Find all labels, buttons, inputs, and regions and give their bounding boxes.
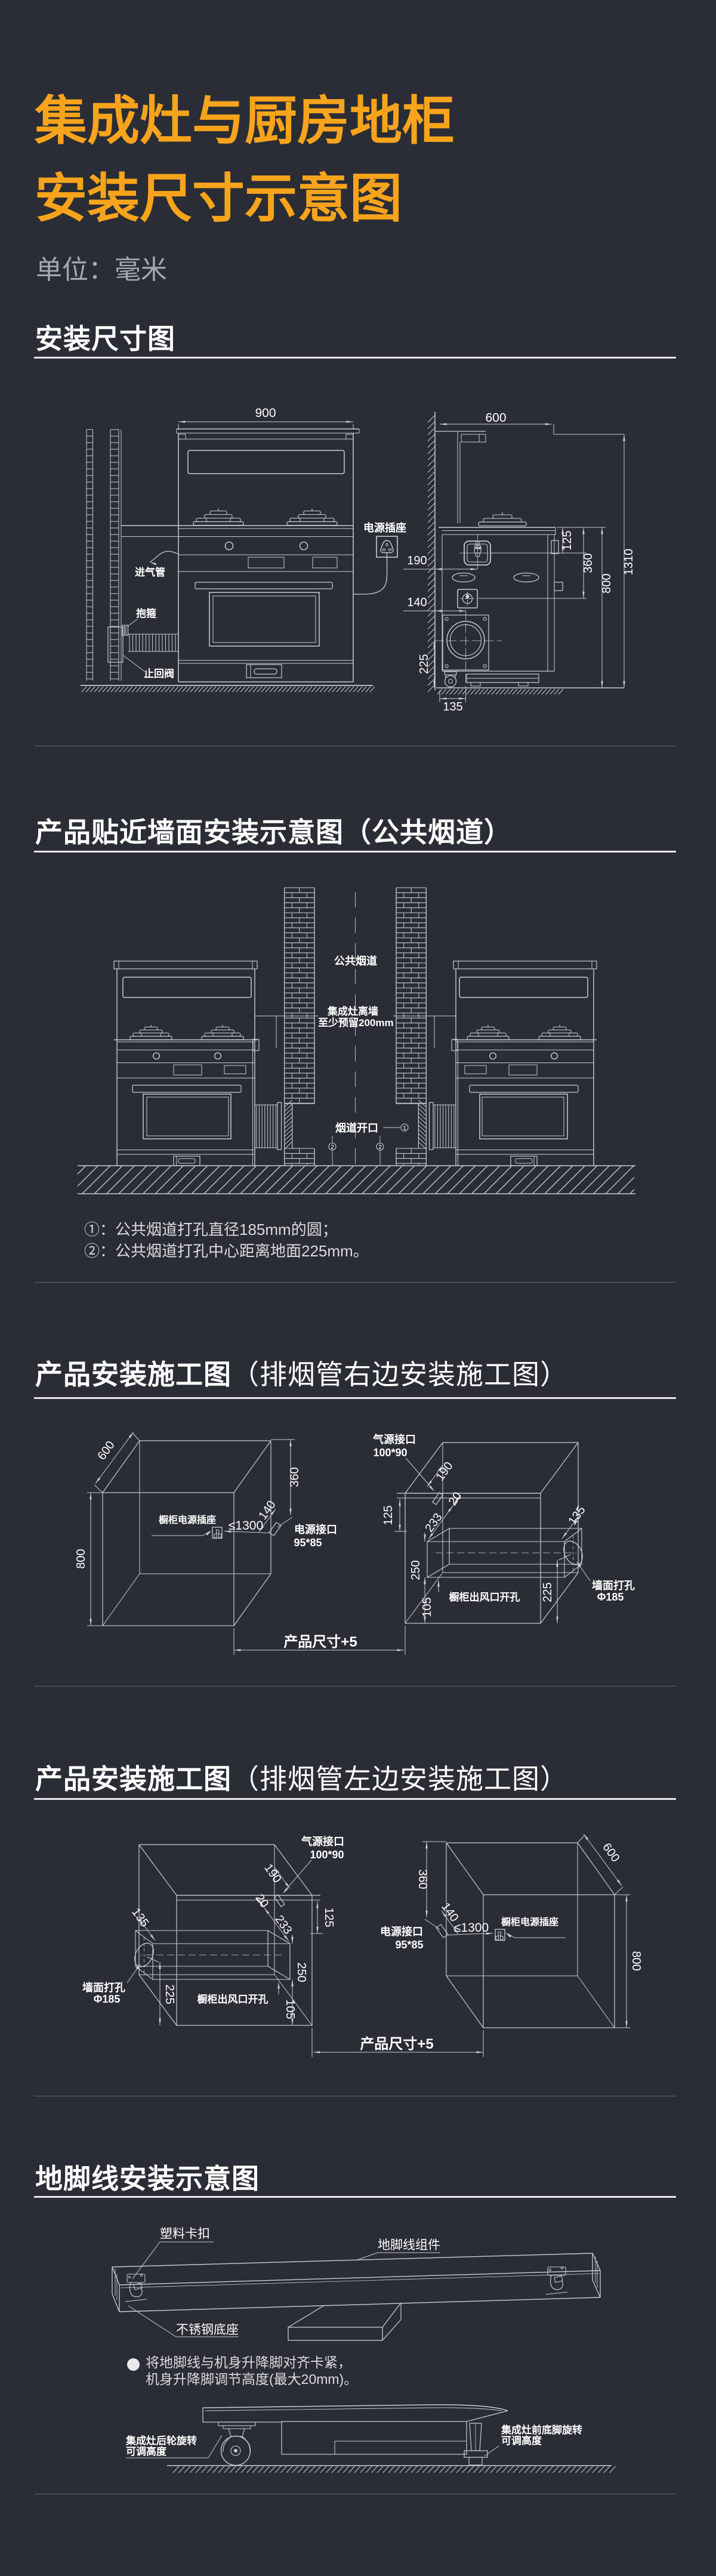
svg-text:烟道开口: 烟道开口	[335, 1122, 378, 1134]
svg-text:135: 135	[129, 1906, 151, 1930]
svg-text:2: 2	[331, 1144, 334, 1151]
svg-text:250: 250	[409, 1560, 422, 1580]
svg-text:105: 105	[421, 1597, 434, 1617]
svg-text:止回阀: 止回阀	[144, 668, 174, 679]
svg-text:800: 800	[600, 573, 613, 593]
svg-text:140: 140	[407, 596, 427, 609]
svg-text:100*90: 100*90	[373, 1447, 407, 1459]
svg-text:1310: 1310	[622, 549, 635, 576]
svg-text:产品尺寸+5: 产品尺寸+5	[283, 1633, 357, 1650]
svg-text:橱柜出风口开孔: 橱柜出风口开孔	[197, 1993, 268, 2005]
svg-text:135: 135	[566, 1504, 588, 1528]
svg-text:抱箍: 抱箍	[136, 607, 156, 619]
svg-text:橱柜电源插座: 橱柜电源插座	[501, 1916, 558, 1928]
svg-text:Φ185: Φ185	[94, 1993, 121, 2005]
svg-text:塑料卡扣: 塑料卡扣	[160, 2227, 210, 2241]
svg-text:电源接口: 电源接口	[294, 1523, 337, 1536]
svg-text:集成灶后轮旋转: 集成灶后轮旋转	[125, 2435, 197, 2447]
svg-text:225: 225	[541, 1582, 554, 1602]
svg-text:集成灶离墙: 集成灶离墙	[327, 1005, 378, 1017]
svg-text:100*90: 100*90	[310, 1849, 344, 1861]
svg-text:600: 600	[485, 411, 506, 425]
svg-text:集成灶前底脚旋转: 集成灶前底脚旋转	[501, 2424, 582, 2436]
svg-text:2: 2	[378, 1144, 382, 1151]
svg-text:电源接口: 电源接口	[380, 1925, 423, 1938]
svg-text:≤1300: ≤1300	[229, 1519, 263, 1533]
svg-text:600: 600	[95, 1439, 117, 1463]
svg-text:Φ185: Φ185	[597, 1591, 624, 1603]
svg-text:橱柜出风口开孔: 橱柜出风口开孔	[449, 1591, 520, 1603]
svg-text:125: 125	[382, 1505, 395, 1525]
svg-text:125: 125	[561, 530, 574, 550]
svg-text:95*85: 95*85	[395, 1939, 423, 1951]
svg-text:≤1300: ≤1300	[454, 1921, 489, 1935]
svg-text:360: 360	[416, 1869, 429, 1889]
svg-text:135: 135	[443, 700, 462, 714]
svg-text:105: 105	[283, 1999, 297, 2019]
svg-text:1: 1	[403, 1125, 406, 1132]
svg-text:气源接口: 气源接口	[301, 1835, 344, 1848]
svg-text:800: 800	[75, 1549, 88, 1568]
svg-text:墙面打孔: 墙面打孔	[592, 1579, 635, 1592]
svg-text:600: 600	[600, 1841, 622, 1865]
svg-text:气源接口: 气源接口	[372, 1433, 416, 1445]
svg-text:电源插座: 电源插座	[363, 521, 406, 534]
svg-text:地脚线组件: 地脚线组件	[378, 2238, 440, 2252]
svg-text:进气管: 进气管	[135, 566, 165, 578]
svg-text:125: 125	[322, 1907, 335, 1927]
svg-text:产品尺寸+5: 产品尺寸+5	[360, 2036, 433, 2052]
svg-text:360: 360	[288, 1467, 301, 1487]
svg-text:橱柜电源插座: 橱柜电源插座	[159, 1514, 216, 1525]
svg-text:233: 233	[272, 1913, 294, 1937]
svg-text:900: 900	[255, 406, 276, 420]
svg-text:可调高度: 可调高度	[126, 2445, 167, 2457]
svg-text:233: 233	[422, 1511, 445, 1535]
svg-text:225: 225	[163, 1984, 176, 2004]
svg-text:190: 190	[407, 554, 427, 567]
svg-text:可调高度: 可调高度	[501, 2435, 542, 2447]
svg-text:20: 20	[252, 1892, 271, 1910]
svg-text:190: 190	[433, 1460, 455, 1484]
svg-text:至少预留200mm: 至少预留200mm	[318, 1017, 394, 1028]
svg-text:800: 800	[629, 1951, 643, 1970]
svg-text:墙面打孔: 墙面打孔	[82, 1981, 125, 1994]
svg-text:360: 360	[582, 553, 595, 573]
svg-text:20: 20	[446, 1490, 465, 1508]
svg-text:225: 225	[418, 654, 431, 674]
svg-text:95*85: 95*85	[294, 1537, 322, 1549]
svg-text:190: 190	[261, 1862, 283, 1886]
svg-text:公共烟道: 公共烟道	[334, 955, 377, 967]
svg-text:不锈钢底座: 不锈钢底座	[176, 2323, 239, 2337]
svg-text:250: 250	[295, 1962, 308, 1982]
